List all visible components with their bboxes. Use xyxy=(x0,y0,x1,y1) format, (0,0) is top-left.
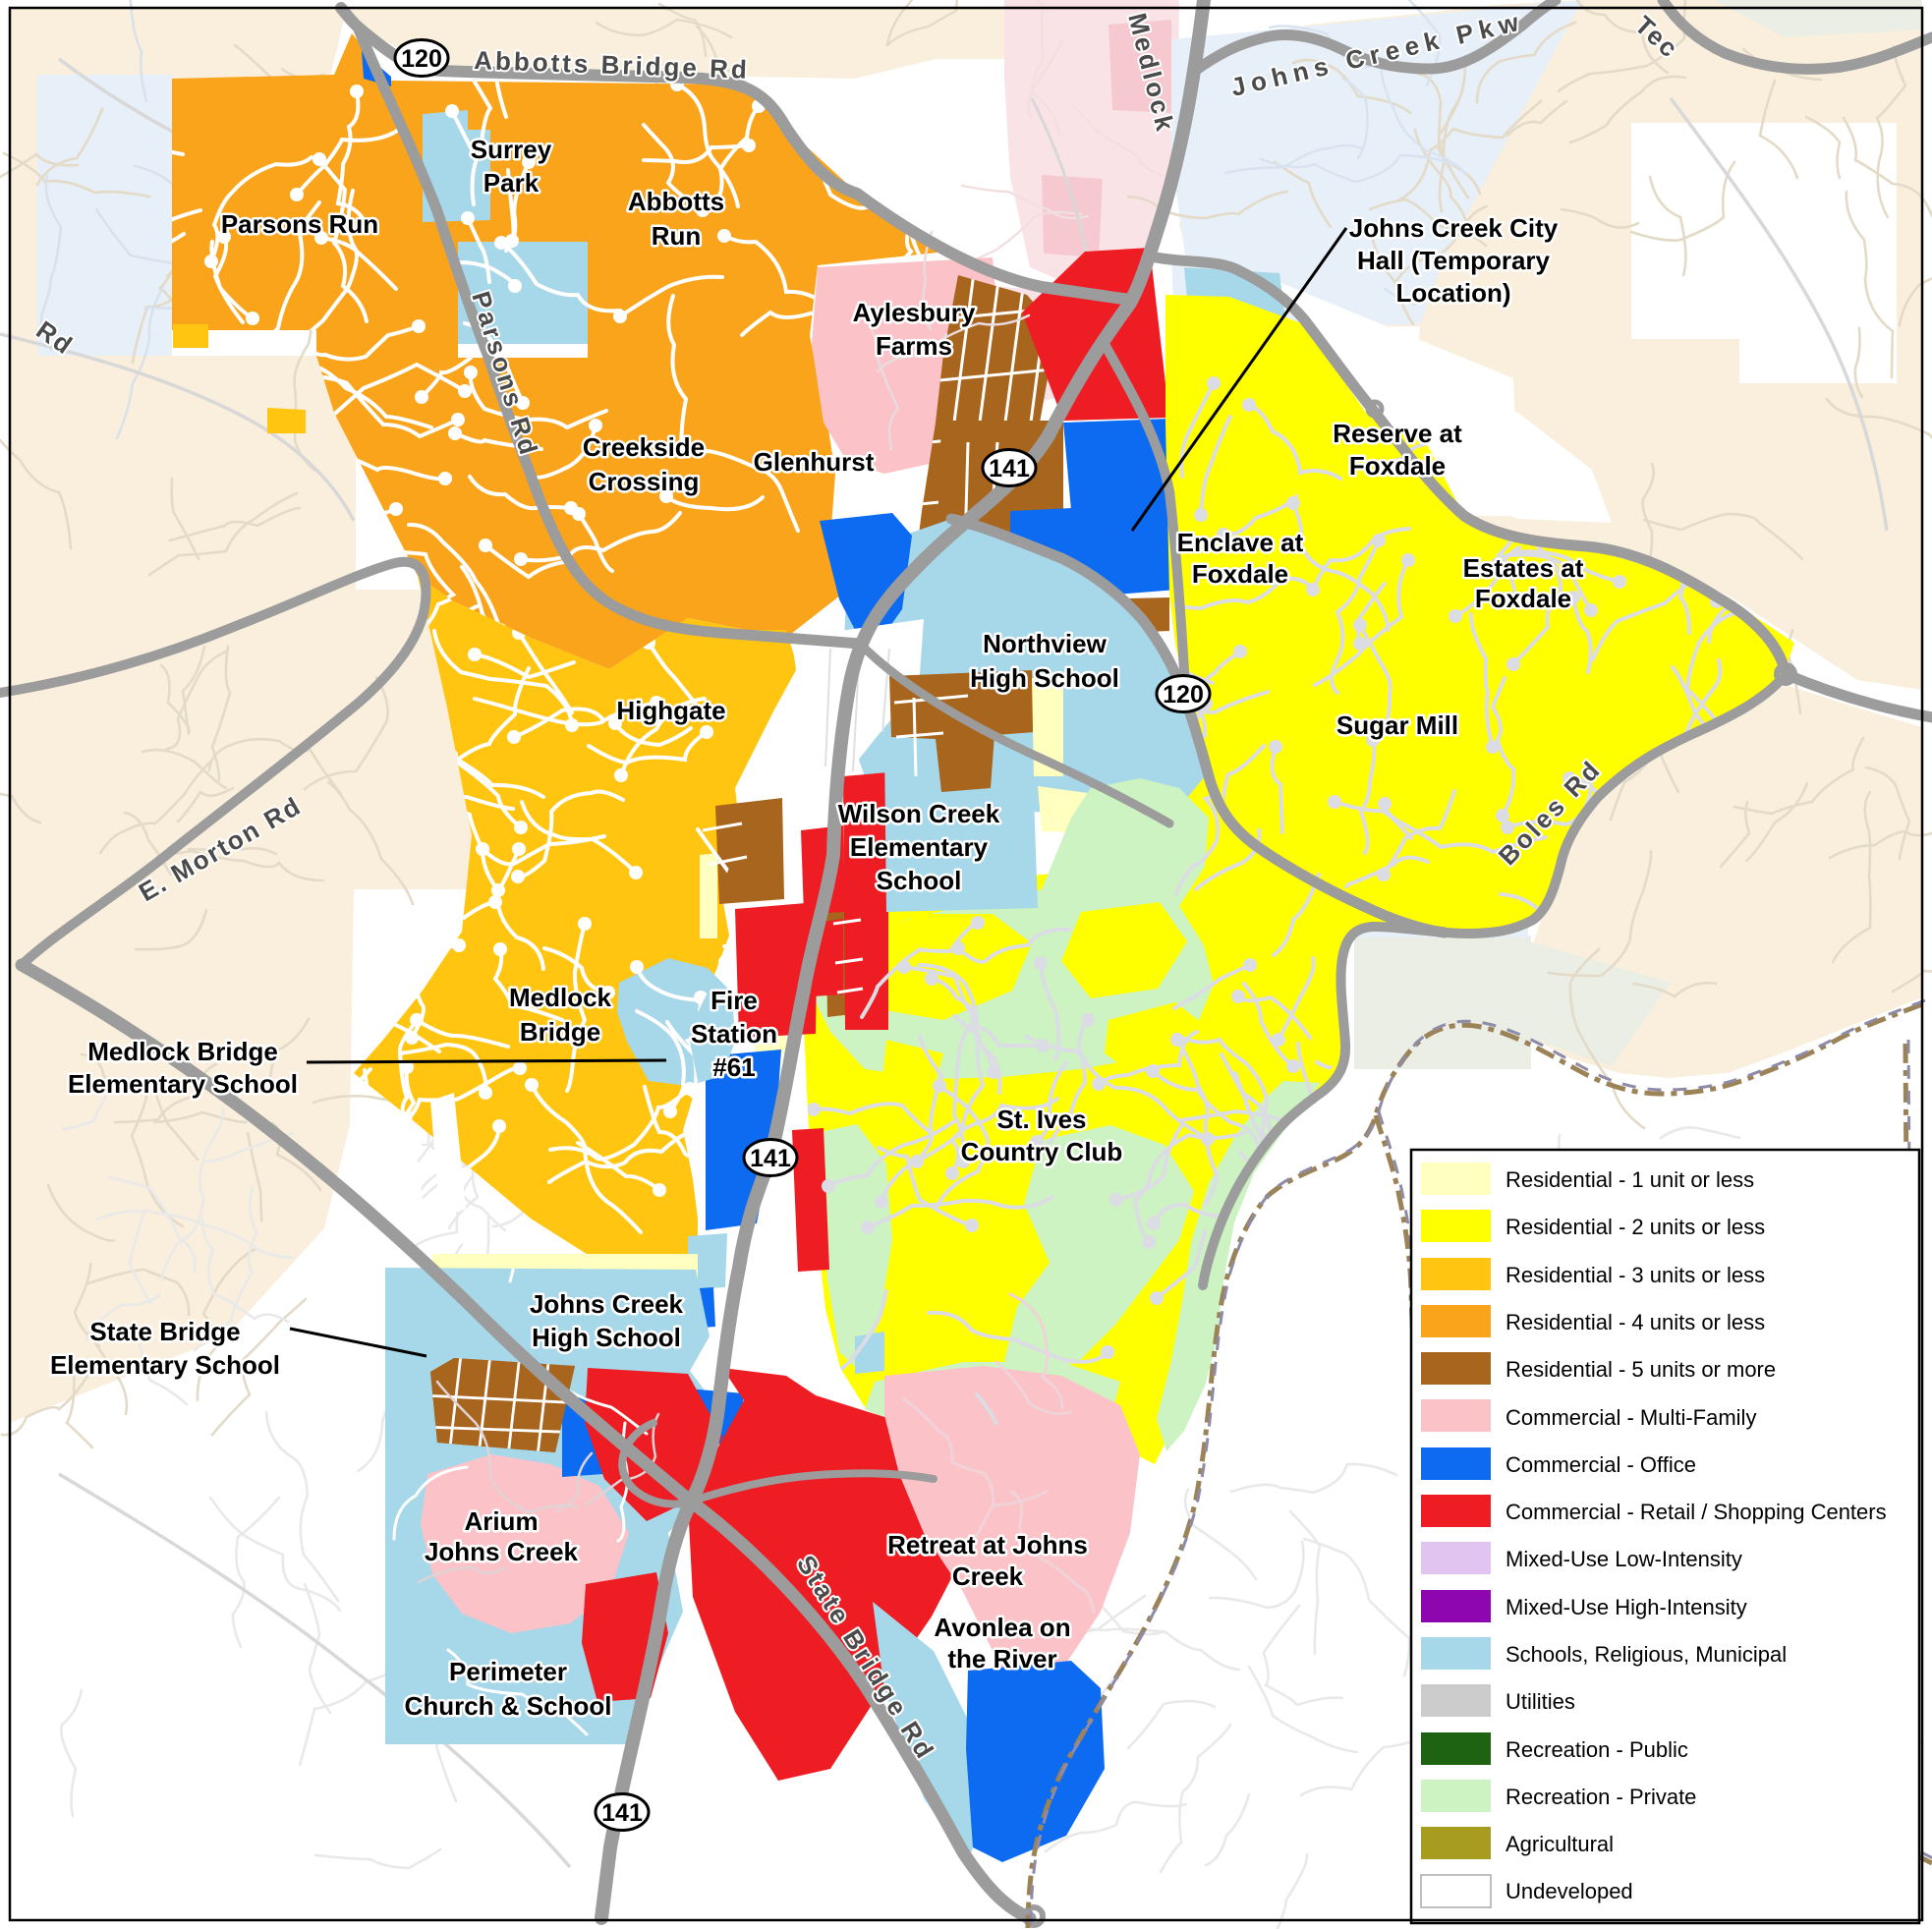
svg-text:Arium: Arium xyxy=(464,1506,538,1536)
svg-text:Medlock Bridge: Medlock Bridge xyxy=(87,1037,278,1066)
svg-text:120: 120 xyxy=(401,45,442,73)
svg-text:141: 141 xyxy=(750,1145,791,1172)
svg-text:Residential - 4 units or less: Residential - 4 units or less xyxy=(1506,1310,1765,1334)
svg-text:Johns Creek: Johns Creek xyxy=(425,1537,579,1566)
svg-text:Creekside: Creekside xyxy=(583,432,705,462)
svg-text:Retreat at Johns: Retreat at Johns xyxy=(887,1530,1088,1560)
svg-text:Undeveloped: Undeveloped xyxy=(1506,1879,1633,1903)
svg-text:Schools, Religious, Municipal: Schools, Religious, Municipal xyxy=(1506,1642,1787,1667)
svg-text:Farms: Farms xyxy=(876,331,952,361)
svg-text:Wilson Creek: Wilson Creek xyxy=(838,799,1000,828)
svg-text:Commercial - Multi-Family: Commercial - Multi-Family xyxy=(1506,1405,1756,1430)
svg-text:Residential - 2 units or less: Residential - 2 units or less xyxy=(1506,1215,1765,1239)
svg-text:141: 141 xyxy=(989,455,1030,482)
svg-text:Enclave at: Enclave at xyxy=(1177,528,1304,557)
svg-text:Park: Park xyxy=(483,168,540,198)
svg-text:Mixed-Use High-Intensity: Mixed-Use High-Intensity xyxy=(1506,1595,1747,1619)
svg-text:Johns Creek City: Johns Creek City xyxy=(1349,213,1559,243)
svg-text:Fire: Fire xyxy=(710,986,758,1015)
svg-text:State Bridge: State Bridge xyxy=(89,1317,240,1346)
svg-text:#61: #61 xyxy=(712,1052,755,1082)
svg-text:Foxdale: Foxdale xyxy=(1475,584,1571,613)
svg-text:Recreation - Public: Recreation - Public xyxy=(1506,1737,1688,1762)
svg-text:Estates at: Estates at xyxy=(1463,553,1584,583)
svg-text:Foxdale: Foxdale xyxy=(1349,451,1446,481)
svg-text:the River: the River xyxy=(947,1644,1056,1674)
svg-text:High School: High School xyxy=(532,1323,681,1352)
svg-text:St. Ives: St. Ives xyxy=(996,1105,1086,1134)
svg-text:High School: High School xyxy=(970,663,1119,693)
svg-text:Hall (Temporary: Hall (Temporary xyxy=(1357,246,1551,275)
svg-text:Creek: Creek xyxy=(952,1561,1024,1591)
svg-text:Elementary School: Elementary School xyxy=(68,1069,298,1099)
svg-text:Aylesbury: Aylesbury xyxy=(853,298,976,327)
svg-text:Medlock: Medlock xyxy=(509,983,612,1012)
svg-text:Location): Location) xyxy=(1396,278,1511,308)
svg-text:Residential - 3 units or less: Residential - 3 units or less xyxy=(1506,1263,1765,1287)
svg-text:Perimeter: Perimeter xyxy=(449,1657,567,1686)
svg-text:141: 141 xyxy=(601,1799,643,1827)
svg-text:Commercial - Office: Commercial - Office xyxy=(1506,1452,1696,1477)
svg-text:Crossing: Crossing xyxy=(589,467,700,496)
svg-text:Avonlea on: Avonlea on xyxy=(934,1613,1070,1642)
svg-text:Highgate: Highgate xyxy=(616,696,725,725)
svg-text:School: School xyxy=(877,866,962,895)
svg-text:Residential - 1 unit or less: Residential - 1 unit or less xyxy=(1506,1167,1754,1192)
svg-text:Foxdale: Foxdale xyxy=(1192,559,1288,589)
svg-text:Commercial - Retail / Shopping: Commercial - Retail / Shopping Centers xyxy=(1506,1500,1887,1524)
svg-text:Recreation - Private: Recreation - Private xyxy=(1506,1785,1696,1809)
svg-text:Elementary: Elementary xyxy=(850,832,989,862)
svg-text:Mixed-Use Low-Intensity: Mixed-Use Low-Intensity xyxy=(1506,1547,1742,1571)
svg-text:Johns Creek: Johns Creek xyxy=(530,1289,684,1319)
svg-text:Station: Station xyxy=(691,1019,777,1049)
svg-text:120: 120 xyxy=(1163,681,1204,709)
svg-text:Country Club: Country Club xyxy=(961,1137,1123,1166)
svg-text:Utilities: Utilities xyxy=(1506,1689,1575,1714)
svg-text:Surrey: Surrey xyxy=(471,135,552,164)
svg-text:Elementary School: Elementary School xyxy=(50,1350,280,1380)
svg-text:Glenhurst: Glenhurst xyxy=(754,447,875,477)
svg-text:Run: Run xyxy=(652,221,702,251)
svg-text:Church & School: Church & School xyxy=(405,1691,612,1721)
svg-text:Abbotts: Abbotts xyxy=(628,187,724,216)
svg-text:Bridge: Bridge xyxy=(520,1017,600,1047)
svg-text:Residential - 5 units or more: Residential - 5 units or more xyxy=(1506,1357,1776,1382)
svg-text:Agricultural: Agricultural xyxy=(1506,1832,1614,1856)
svg-text:Sugar Mill: Sugar Mill xyxy=(1336,710,1458,740)
svg-text:Northview: Northview xyxy=(983,629,1107,658)
svg-text:Reserve at: Reserve at xyxy=(1333,419,1462,448)
svg-text:Parsons Run: Parsons Run xyxy=(221,209,378,239)
